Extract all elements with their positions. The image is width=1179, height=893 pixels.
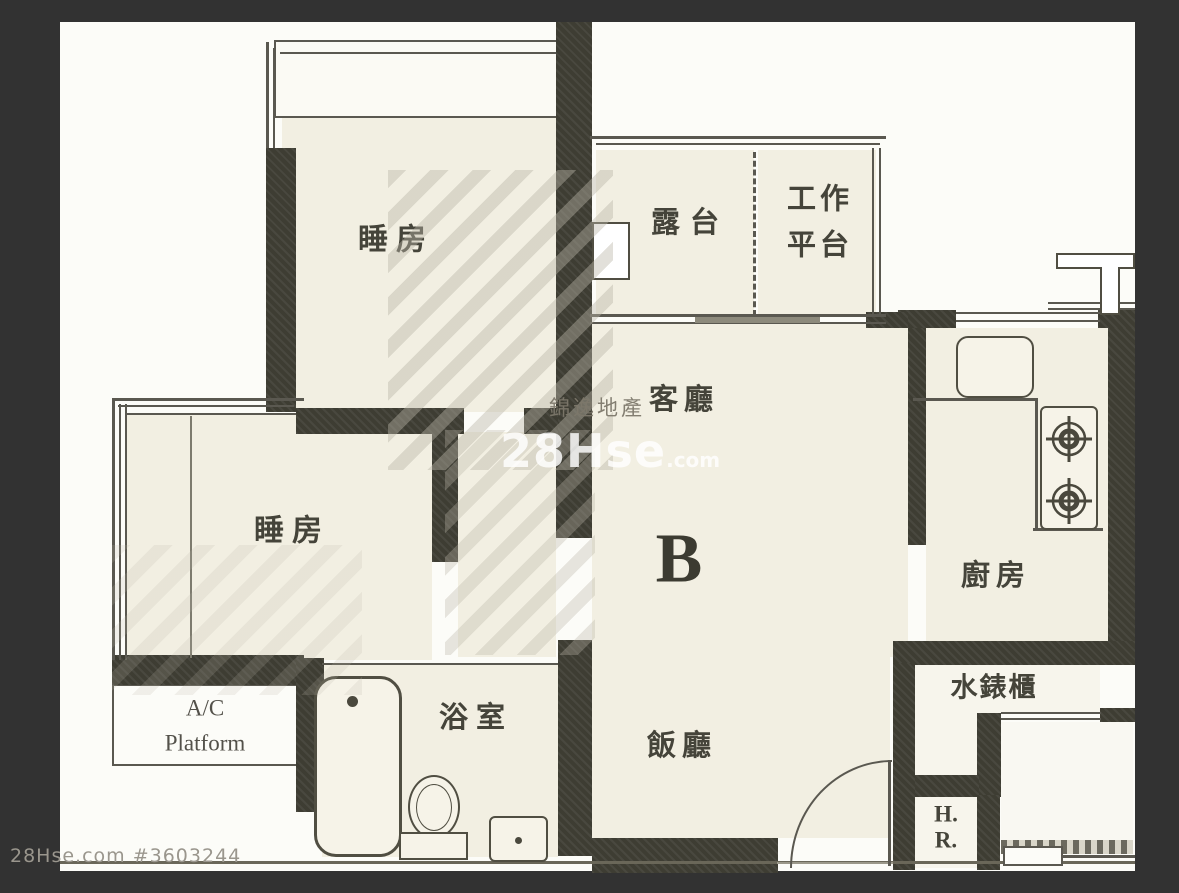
wall-segment	[908, 315, 926, 545]
wall-segment	[112, 655, 304, 685]
window-line	[280, 52, 556, 54]
room-bedroom-1	[282, 112, 556, 412]
flue-duct	[1100, 267, 1120, 315]
plan-bottom-edge	[60, 861, 1135, 864]
wall-segment	[893, 663, 915, 870]
label-bedroom-2: 睡房	[254, 509, 330, 553]
label-hose-reel: H. R.	[934, 802, 958, 855]
flue-duct	[1056, 253, 1135, 269]
balcony-utility-divider-dashed	[753, 152, 756, 316]
label-living-room: 客廳	[649, 378, 719, 420]
wall-segment	[432, 416, 458, 562]
counter-edge-line	[913, 398, 1038, 401]
stove-burners-icon	[1042, 408, 1096, 528]
lobby-door-line	[1001, 718, 1101, 720]
meter-cabinet-lower	[915, 713, 977, 775]
window-line	[266, 42, 269, 148]
wall-segment	[1108, 328, 1135, 644]
wall-segment	[556, 22, 592, 538]
window-sill-line	[1048, 308, 1135, 310]
step-line	[1063, 855, 1135, 858]
label-bathroom: 浴室	[439, 696, 513, 738]
lobby-area	[1001, 722, 1133, 840]
window-sill-line	[1048, 302, 1135, 304]
balcony-parapet-line	[590, 136, 886, 139]
bedroom-2-inner-line	[190, 416, 192, 658]
bathtub-drain	[347, 696, 358, 707]
window-line	[273, 48, 275, 148]
wall-segment	[977, 795, 1000, 870]
toilet-bowl-inner	[416, 784, 452, 831]
lobby-door-line	[1001, 712, 1101, 714]
utility-wall-line	[879, 148, 881, 316]
unit-letter: B	[656, 508, 703, 610]
wall-segment	[524, 408, 558, 434]
corridor	[458, 432, 556, 657]
window-line	[112, 398, 115, 660]
bathtub	[314, 676, 402, 857]
label-ac-platform: A/C Platform	[165, 692, 246, 761]
kitchen-window-line	[956, 320, 1100, 322]
room-living	[592, 324, 908, 657]
entrance-door-leaf	[888, 760, 891, 866]
label-utility-platform: 工作 平台	[787, 176, 853, 269]
wall-segment	[592, 838, 778, 873]
window-line	[119, 404, 121, 660]
label-balcony: 露台	[651, 201, 729, 243]
floor-plan-screenshot: 睡房 睡房 露台 工作 平台 客廳 B 飯廳 廚房 浴室 水錶櫃 H. R. A…	[0, 0, 1179, 893]
label-meter-cabinet: 水錶櫃	[951, 668, 1038, 707]
stove	[1040, 406, 1098, 530]
bathroom-top-line	[322, 663, 558, 665]
basin-drain	[515, 837, 522, 844]
wall-segment	[558, 640, 592, 856]
label-dining-room: 飯廳	[647, 724, 717, 766]
wall-segment	[266, 148, 296, 412]
wall-segment	[977, 713, 1001, 797]
balcony-parapet-line	[596, 143, 880, 145]
water-meter-step	[1003, 846, 1063, 866]
window-line	[112, 398, 304, 401]
wall-segment	[1100, 708, 1135, 722]
label-bedroom-1: 睡房	[358, 218, 434, 262]
ac-unit	[592, 222, 630, 280]
toilet-tank	[399, 832, 468, 860]
kitchen-window-line	[956, 312, 1100, 314]
counter-edge-line	[1035, 400, 1038, 531]
sliding-door-leaf	[695, 317, 820, 323]
kitchen-sink	[956, 336, 1034, 398]
window-line	[118, 405, 294, 407]
label-kitchen: 廚房	[961, 554, 1031, 596]
wall-segment	[893, 641, 1135, 665]
window-line	[125, 404, 127, 660]
utility-wall-line	[872, 148, 874, 316]
